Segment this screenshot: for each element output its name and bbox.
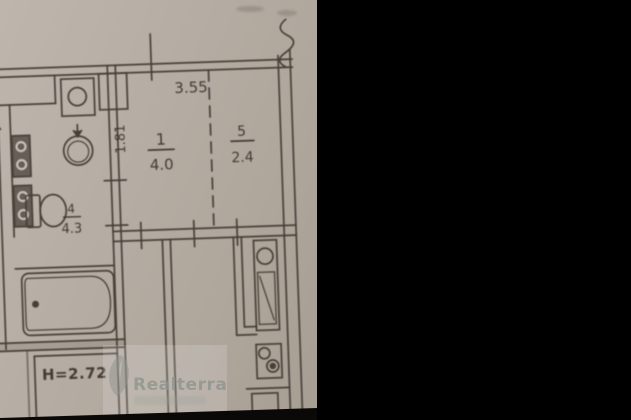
middle-wall bbox=[113, 217, 297, 249]
watermark-subline bbox=[134, 396, 206, 405]
screenshot-background: 3.55 1.81 1 4.0 5 2.4 4 4.3 H=2.72 bbox=[0, 0, 631, 420]
room-5-area: 2.4 bbox=[231, 150, 254, 167]
washing-machine bbox=[61, 78, 95, 116]
paper-smudges bbox=[236, 6, 297, 16]
door-jamb-tick bbox=[104, 180, 126, 181]
dashed-partition-line bbox=[208, 70, 214, 228]
top-wall bbox=[0, 29, 293, 86]
watermark: Realterra bbox=[103, 345, 227, 415]
vent-shaft bbox=[12, 135, 31, 177]
wash-basin bbox=[63, 124, 93, 165]
dimension-tick bbox=[150, 34, 152, 80]
storage-cabinet bbox=[99, 73, 128, 110]
stove bbox=[256, 344, 282, 379]
left-dimension-label: 1.81 bbox=[113, 124, 129, 153]
room-1-fraction-line bbox=[148, 149, 174, 150]
door-jamb-tick bbox=[237, 219, 238, 245]
door-jamb-tick bbox=[106, 225, 128, 226]
bath-alcove-wall bbox=[15, 265, 114, 268]
room-5-number: 5 bbox=[237, 124, 246, 140]
door-jamb-tick bbox=[141, 222, 142, 248]
room-4-fraction-line bbox=[63, 217, 80, 218]
room-4-number: 4 bbox=[67, 202, 75, 216]
vent-shaft bbox=[13, 185, 32, 227]
room-4-area: 4.3 bbox=[61, 222, 82, 238]
floorplan-drawing: 3.55 1.81 1 4.0 5 2.4 4 4.3 H=2.72 bbox=[0, 0, 317, 420]
room-5-fraction-line bbox=[231, 140, 254, 141]
watermark-brand: Realterra bbox=[133, 375, 227, 395]
floorplan-photo: 3.55 1.81 1 4.0 5 2.4 4 4.3 H=2.72 bbox=[0, 0, 317, 420]
top-dimension-label: 3.55 bbox=[174, 78, 208, 97]
kitchen-sink-unit bbox=[253, 240, 279, 331]
bathtub bbox=[21, 270, 115, 335]
room-1-number: 1 bbox=[155, 130, 166, 149]
door-jamb-tick bbox=[194, 221, 195, 247]
ceiling-height-label: H=2.72 bbox=[42, 364, 108, 384]
room-1-area: 4.0 bbox=[149, 155, 173, 174]
